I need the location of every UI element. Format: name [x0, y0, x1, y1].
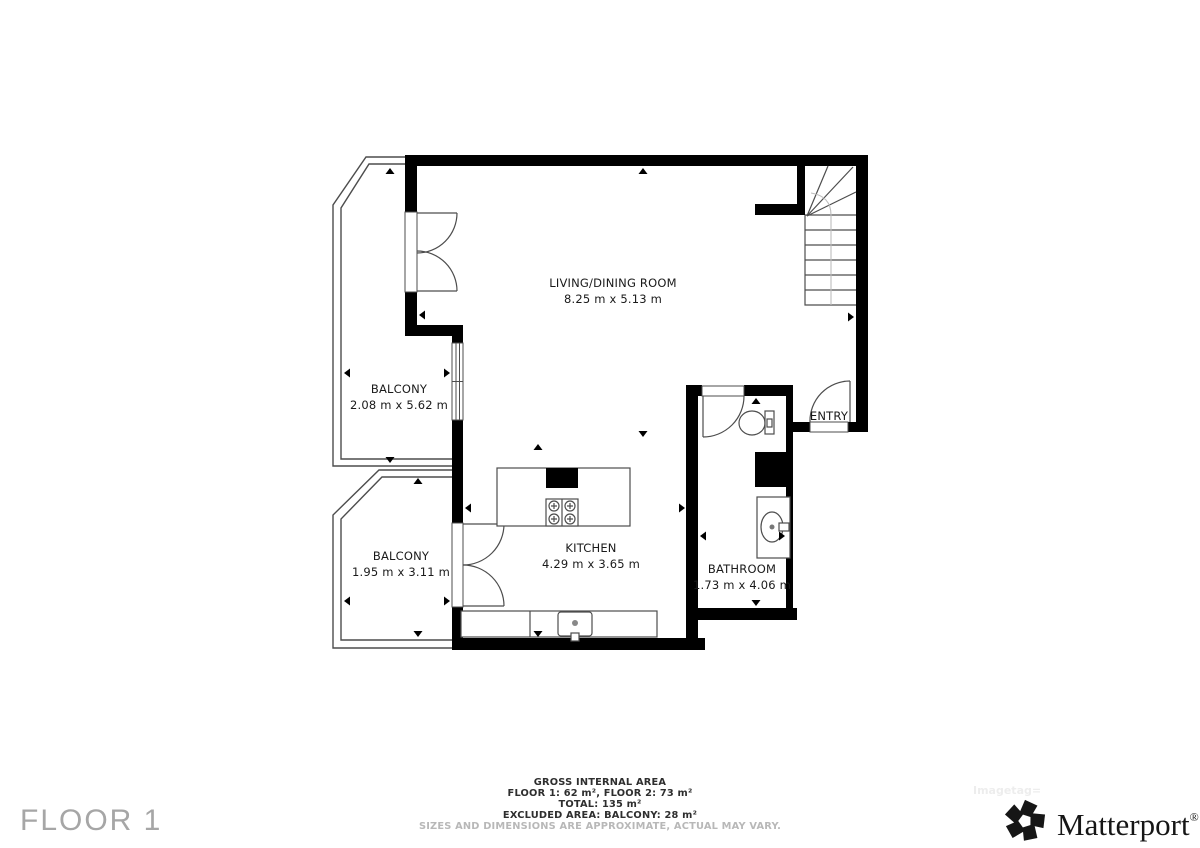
- wall-stair-horizontal: [755, 204, 805, 215]
- living-door-arc: [417, 213, 457, 253]
- toilet-icon: [739, 411, 774, 435]
- bathroom-sink-icon: [757, 497, 790, 558]
- living-door-arc: [417, 251, 457, 291]
- living-door-frame: [405, 212, 417, 292]
- entry-label: ENTRY: [810, 409, 849, 423]
- brand-wordmark: Matterport®: [1057, 794, 1199, 848]
- kitchen-door-arc: [463, 565, 504, 606]
- registered-mark: ®: [1190, 810, 1199, 824]
- kitchen-door-frame: [452, 523, 463, 607]
- bathroom-door-arc: [703, 396, 744, 437]
- wall-bath-right-upper: [786, 396, 793, 452]
- kitchen-label: KITCHEN: [565, 541, 616, 555]
- walls: [405, 155, 868, 650]
- fixtures: [461, 411, 790, 641]
- kitchen-door-arc: [463, 524, 504, 565]
- balcony-lower-label: BALCONY: [373, 549, 430, 563]
- floorplan-drawing: LIVING/DINING ROOM 8.25 m x 5.13 m BALCO…: [0, 0, 1200, 848]
- bathroom-dims: 1.73 m x 4.06 m: [693, 578, 791, 592]
- wall-entry-bottom-right: [848, 422, 868, 432]
- duct-block: [755, 452, 793, 487]
- wall-kitchen-west-stub: [452, 330, 463, 343]
- stair-winder: [807, 192, 856, 216]
- balcony-upper-label: BALCONY: [371, 382, 428, 396]
- wall-left-upper: [405, 155, 417, 212]
- wall-bath-top-right: [744, 385, 793, 396]
- kitchen-dims: 4.29 m x 3.65 m: [542, 557, 640, 571]
- floorplan-page: LIVING/DINING ROOM 8.25 m x 5.13 m BALCO…: [0, 0, 1200, 848]
- stair-winder: [807, 166, 828, 216]
- living-room-label: LIVING/DINING ROOM: [549, 276, 676, 290]
- wall-bath-top-left: [686, 385, 702, 396]
- balcony-upper-inner-line: [341, 164, 452, 459]
- balcony-upper-dims: 2.08 m x 5.62 m: [350, 398, 448, 412]
- brand-name: Matterport: [1057, 807, 1190, 842]
- bathroom-label: BATHROOM: [708, 562, 776, 576]
- balcony-upper-outer-line: [333, 157, 452, 466]
- stair-walkline-curve: [811, 193, 831, 215]
- entry-door-opening: [810, 422, 848, 432]
- wall-entry-bottom-left: [793, 422, 810, 432]
- wall-bath-bottom: [693, 608, 797, 620]
- cooktop-icon: [546, 499, 578, 526]
- wall-right: [856, 155, 868, 432]
- floor-title: FLOOR 1: [20, 804, 162, 838]
- living-room-dims: 8.25 m x 5.13 m: [564, 292, 662, 306]
- bathroom-door-opening: [702, 386, 744, 396]
- brand-logo: Matterport®: [1002, 794, 1199, 848]
- matterport-pinwheel-icon: [1002, 798, 1048, 844]
- wall-kitchen-west: [452, 420, 463, 523]
- balcony-lower-dims: 1.95 m x 3.11 m: [352, 565, 450, 579]
